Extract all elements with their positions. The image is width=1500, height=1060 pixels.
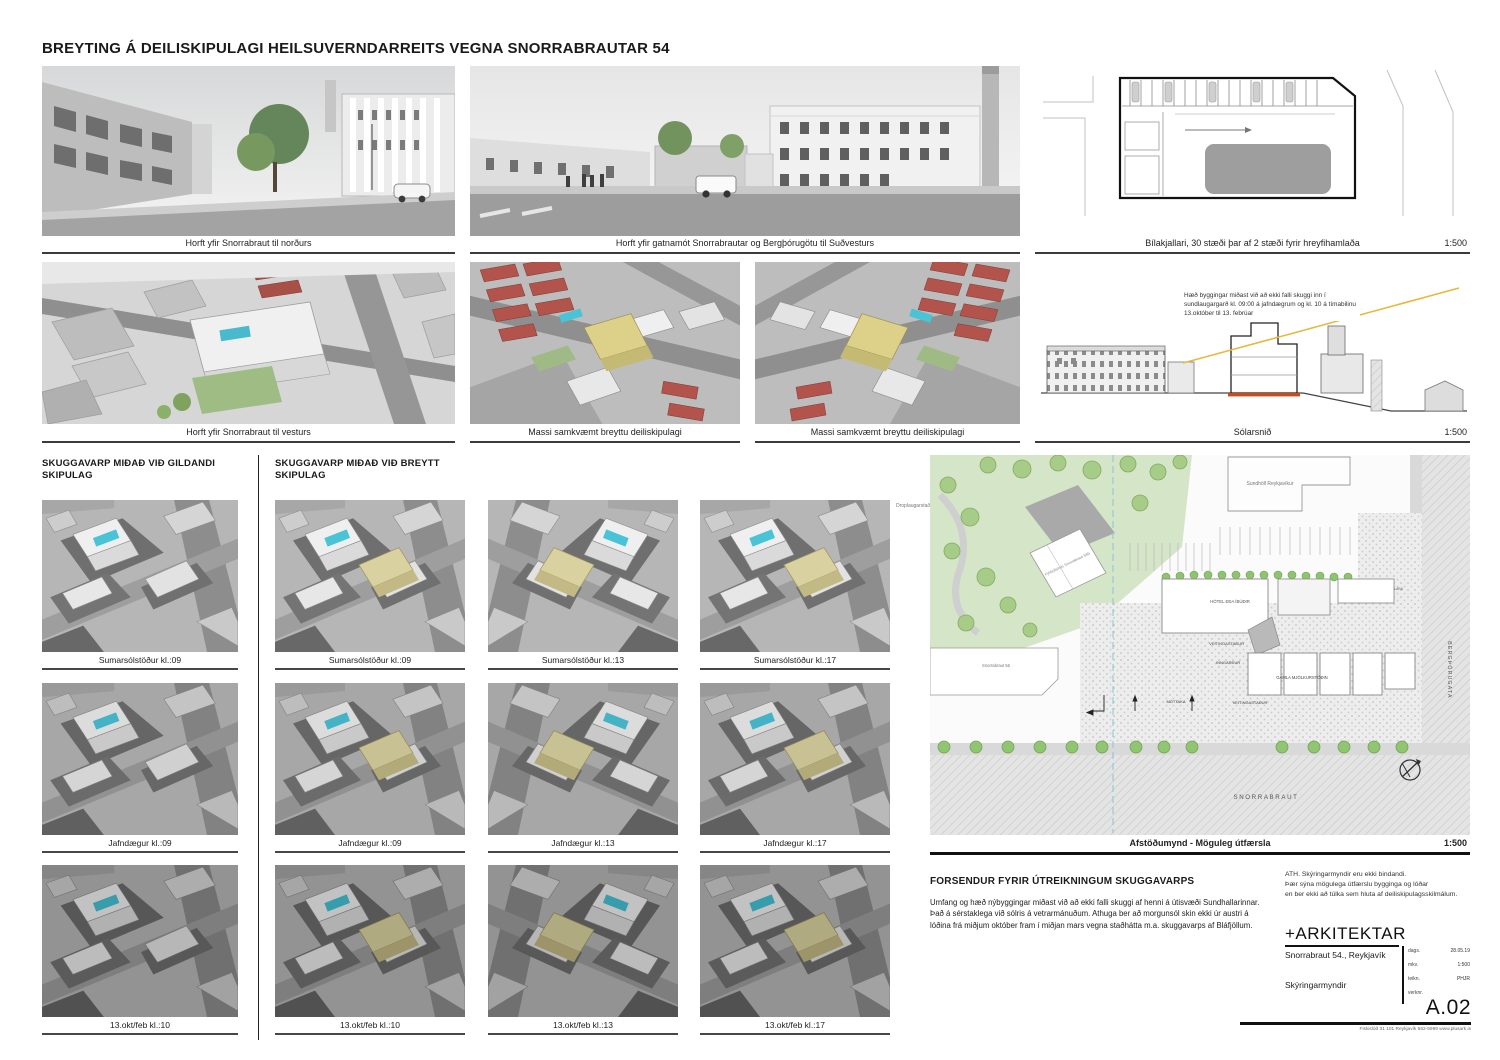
field-teikn-value: PHJR [1457,976,1470,982]
site-plan-caption: Afstöðumynd - Möguleg útfærsla [1130,838,1271,848]
forsendur-heading: FORSENDUR FYRIR ÚTREIKNINGUM SKUGGAVARPS [930,876,1280,887]
shadow-caption: Jafndægur kl.:17 [700,838,890,853]
shadow-caption: Sumarsólstöður kl.:09 [42,655,238,670]
caption-bar: Massi samkvæmt breyttu deiliskipulagi [755,427,1020,443]
shadow-caption: Sumarsólstöður kl.:09 [275,655,465,670]
field-mkv: mkv. 1:500 [1408,962,1470,968]
shadow-changed-image-3-3 [700,865,890,1017]
mass-model-1 [470,262,740,424]
label-gamla-mjolkurstodin: GAMLA MJÓLKURSTÖÐIN [1276,675,1327,680]
label-snorrabraut56: Snorrabraut 56 [982,663,1011,668]
mass-model-2 [755,262,1020,424]
shadow-existing-image-3 [42,865,238,1017]
shadow-existing-heading: SKUGGAVARP MIÐAÐ VIÐ GILDANDI SKIPULAG [42,458,227,483]
shadow-changed-image-2-2 [488,683,678,835]
section-divider [258,455,259,1040]
drawing-sheet: BREYTING Á DEILISKIPULAGI HEILSUVERNDARR… [0,0,1500,1060]
sun-section-scale: 1:500 [1444,427,1467,437]
field-mkv-value: 1:500 [1457,962,1470,968]
site-plan-scale: 1:500 [1444,838,1467,848]
note-line-3: en ber ekki að túlka sem hluta af deilis… [1285,890,1497,900]
field-verknr-label: verknr. [1408,990,1423,996]
shadow-existing-image-1 [42,500,238,652]
sheet-name: Skýringarmyndir [1285,980,1346,990]
shadow-caption: 13.okt/feb kl.:17 [700,1020,890,1035]
label-inngardur: INNGARÐUR [1216,660,1240,665]
render3-caption: Horft yfir Snorrabraut til vesturs [186,427,311,437]
shadow-caption: Jafndægur kl.:13 [488,838,678,853]
caption-bar: Sólarsnið 1:500 [1035,427,1470,443]
label-bergthorugata: BERGÞÓRUGATA [1446,641,1453,698]
field-teikn-label: teikn. [1408,976,1420,982]
page-title: BREYTING Á DEILISKIPULAGI HEILSUVERNDARR… [42,40,670,57]
field-dags-label: dags. [1408,948,1420,954]
shadow-caption: Jafndægur kl.:09 [275,838,465,853]
shadow-changed-image-3-1 [275,865,465,1017]
label-veitingastadur-2: VEITINGASTAÐUR [1233,700,1268,705]
sun-section-drawing: Hæð byggingar miðast við að ekki falli s… [1035,262,1470,422]
shadow-changed-image-1-1 [275,500,465,652]
caption-bar: Bílakjallari, 30 stæði þar af 2 stæði fy… [1035,238,1470,254]
project-name: Snorrabraut 54., Reykjavík [1285,950,1386,960]
shadow-caption: 13.okt/feb kl.:13 [488,1020,678,1035]
site-plan-drawing: Fjölbýlishús Snorrabraut 56b Sundhöll Re… [930,455,1470,835]
shadow-caption: 13.okt/feb kl.:10 [275,1020,465,1035]
sheet-number: A.02 [1426,996,1471,1020]
label-sundholl: Sundhöll Reykjavíkur [1247,481,1294,487]
disclaimer-note: ATH. Skýringarmyndir eru ekki bindandi. … [1285,870,1497,901]
caption-bar: Horft yfir Snorrabraut til vesturs [42,427,455,443]
field-dags: dags. 28.05.19 [1408,948,1470,954]
shadow-existing-image-2 [42,683,238,835]
caption-bar: Massi samkvæmt breyttu deiliskipulagi [470,427,740,443]
shadow-changed-image-2-1 [275,683,465,835]
render1-caption: Horft yfir Snorrabraut til norðurs [185,238,311,248]
garage-caption: Bílakjallari, 30 stæði þar af 2 stæði fy… [1145,238,1360,248]
label-snorrabraut-street: SNORRABRAUT [1233,794,1298,801]
note-line-2: Þær sýna mögulega útfærslu bygginga og l… [1285,880,1497,890]
garage-scale: 1:500 [1444,238,1467,248]
note-line-1: ATH. Skýringarmyndir eru ekki bindandi. [1285,870,1497,880]
label-hotel: HÓTEL EÐA ÍBÚÐIR [1210,599,1250,604]
render2-caption: Horft yfir gatnamót Snorrabrautar og Ber… [616,238,874,248]
render-snorrabraut-north [42,66,455,236]
title-block-divider [1402,946,1404,1004]
field-teikn: teikn. PHJR [1408,976,1470,982]
shadow-changed-heading: SKUGGAVARP MIÐAÐ VIÐ BREYTT SKIPULAG [275,458,455,483]
shadow-caption: Jafndægur kl.:09 [42,838,238,853]
mass1-caption: Massi samkvæmt breyttu deiliskipulagi [528,427,682,437]
forsendur-body: Umfang og hæð nýbyggingar miðast við að … [930,897,1268,931]
field-dags-value: 28.05.19 [1451,948,1470,954]
caption-bar: Horft yfir Snorrabraut til norðurs [42,238,455,254]
garage-plan-drawing [1035,66,1470,232]
render-gatnamot-southwest [470,66,1020,236]
render-snorrabraut-west-aerial [42,262,455,424]
firm-name: +ARKITEKTAR [1285,924,1399,947]
field-mkv-label: mkv. [1408,962,1418,968]
label-droplaugarstadir: Droplaugarstaðir [896,503,933,509]
sun-section-annotation: Hæð byggingar miðast við að ekki falli s… [1180,290,1360,321]
title-block: +ARKITEKTAR Snorrabraut 54., Reykjavík S… [1285,924,1471,1046]
shadow-caption: Sumarsólstöður kl.:13 [488,655,678,670]
firm-address: Fiskislóð 31 101 Reykjavík 562-5999 www.… [1360,1027,1471,1032]
mass2-caption: Massi samkvæmt breyttu deiliskipulagi [811,427,965,437]
sun-section-caption: Sólarsnið [1234,427,1272,437]
shadow-changed-image-1-2 [488,500,678,652]
site-plan-caption-bar: Afstöðumynd - Möguleg útfærsla 1:500 [930,838,1470,855]
shadow-caption: Sumarsólstöður kl.:17 [700,655,890,670]
label-veitingastadur-1: VEITINGASTAÐUR [1209,641,1244,646]
shadow-caption: 13.okt/feb kl.:10 [42,1020,238,1035]
shadow-changed-image-1-3 [700,500,890,652]
caption-bar: Horft yfir gatnamót Snorrabrautar og Ber… [470,238,1020,254]
title-block-rule [1240,1022,1471,1025]
label-mottaka: MÓTTAKA [1166,699,1185,704]
shadow-changed-image-3-2 [488,865,678,1017]
shadow-changed-image-2-3 [700,683,890,835]
